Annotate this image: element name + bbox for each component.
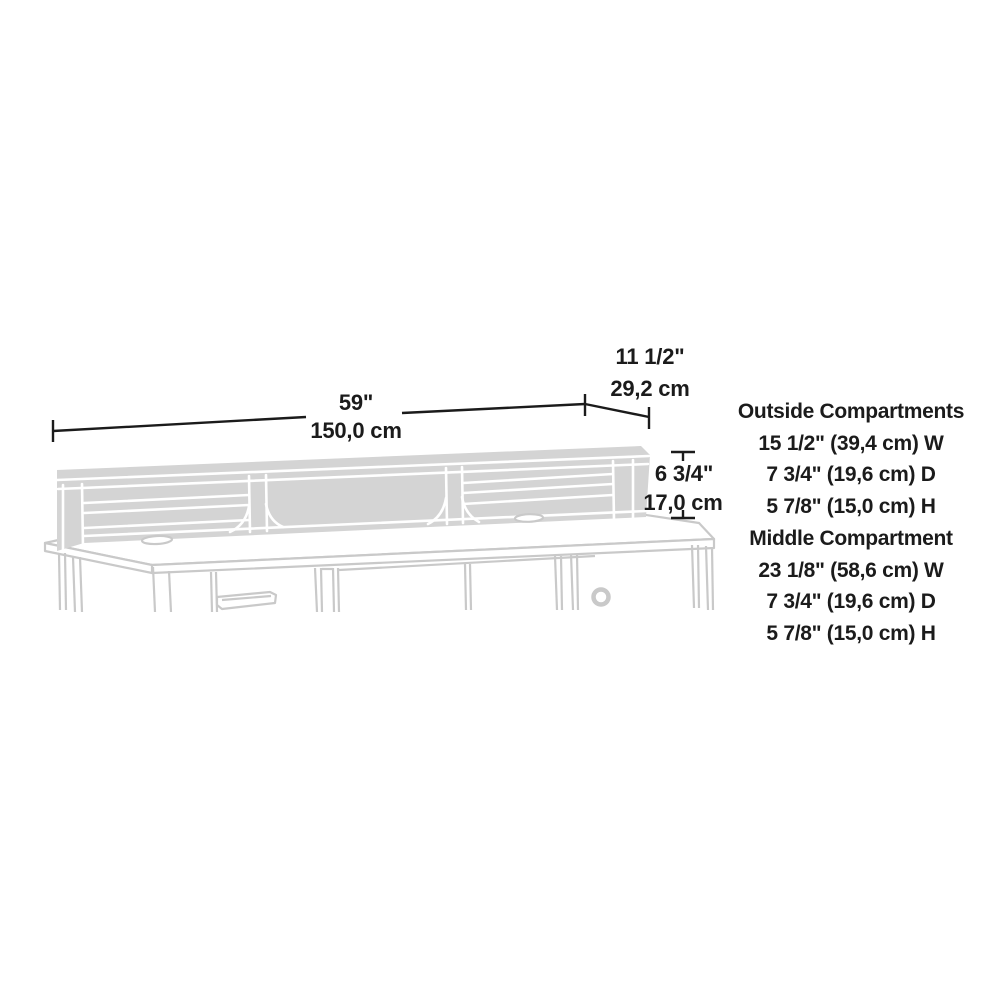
outside-width-spec: 15 1/2" (39,4 cm) W	[738, 428, 964, 460]
compartment-specs: Outside Compartments 15 1/2" (39,4 cm) W…	[738, 396, 964, 650]
grommet-hole	[142, 535, 172, 545]
outside-depth-spec: 7 3/4" (19,6 cm) D	[738, 459, 964, 491]
height-inches-label: 6 3/4"	[655, 460, 713, 488]
outside-compartments-title: Outside Compartments	[738, 396, 964, 428]
middle-width-spec: 23 1/8" (58,6 cm) W	[738, 555, 964, 587]
grommet-hole	[515, 514, 543, 523]
depth-cm-label: 29,2 cm	[610, 375, 689, 403]
outside-height-spec: 5 7/8" (15,0 cm) H	[738, 491, 964, 523]
middle-depth-spec: 7 3/4" (19,6 cm) D	[738, 586, 964, 618]
drawer-knob	[594, 590, 609, 605]
middle-compartment-title: Middle Compartment	[738, 523, 964, 555]
depth-inches-label: 11 1/2"	[616, 343, 685, 371]
middle-height-spec: 5 7/8" (15,0 cm) H	[738, 618, 964, 650]
hutch-dimension-diagram: 59" 150,0 cm 11 1/2" 29,2 cm 6 3/4" 17,0…	[0, 0, 1000, 1000]
depth-dimension-line	[585, 404, 649, 429]
drawer-handle	[217, 592, 276, 609]
width-inches-label: 59"	[339, 389, 373, 417]
width-cm-label: 150,0 cm	[310, 417, 401, 445]
height-cm-label: 17,0 cm	[643, 489, 722, 517]
